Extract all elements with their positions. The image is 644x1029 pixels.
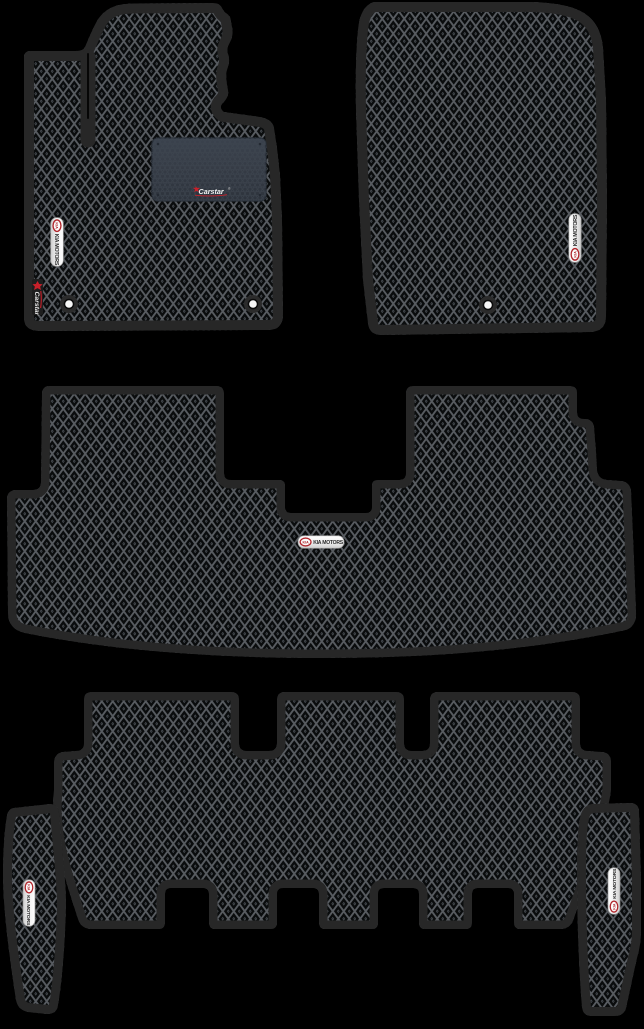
svg-text:®: ® — [228, 187, 231, 191]
svg-text:Carstar: Carstar — [33, 292, 40, 316]
svg-text:Carstar: Carstar — [199, 187, 225, 196]
